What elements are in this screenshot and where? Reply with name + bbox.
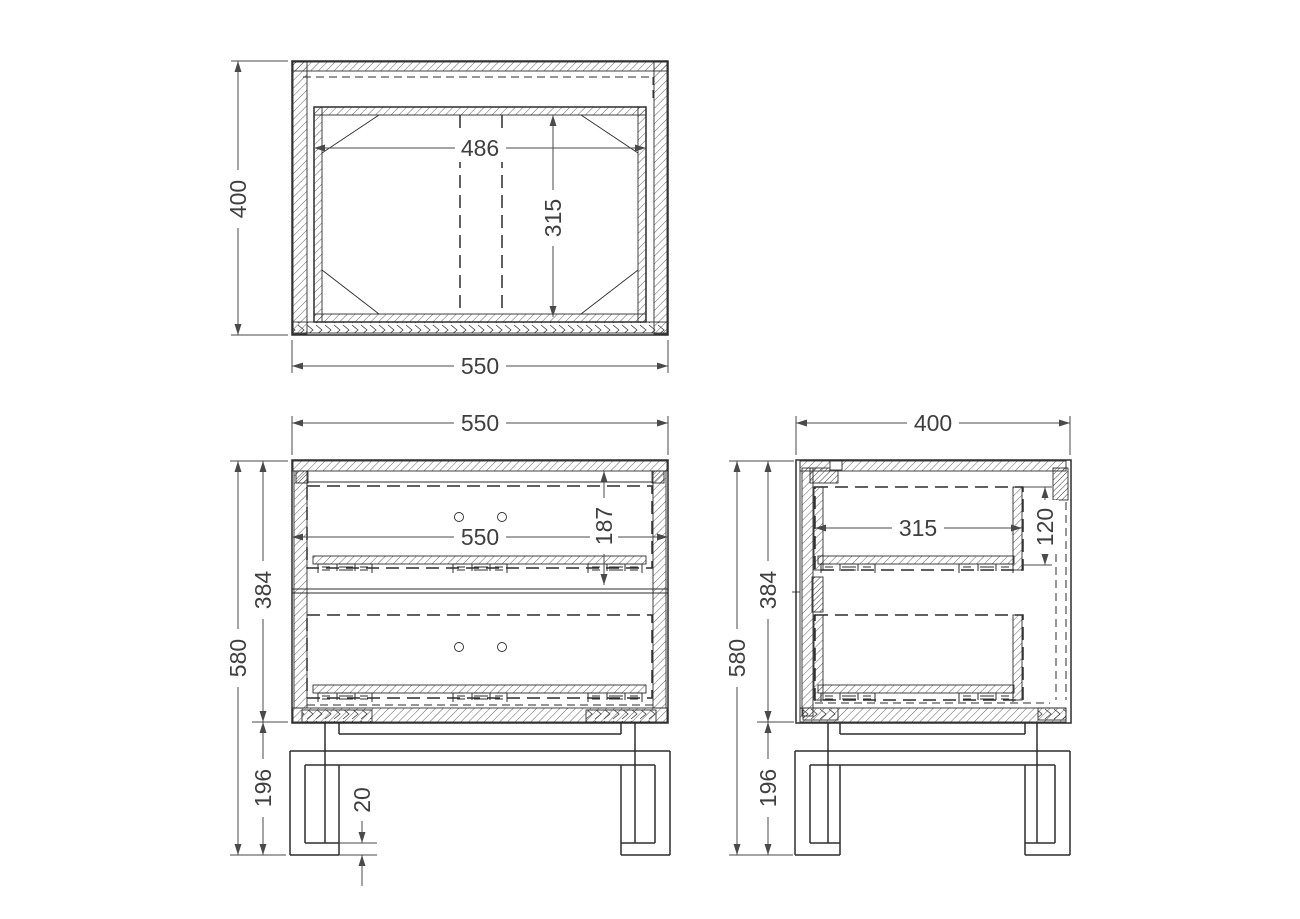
side-drawer-upper-bottom-hatch xyxy=(818,556,1014,564)
front-view-leg-frame xyxy=(290,723,670,855)
front-view-bottom-block-right xyxy=(586,710,656,722)
dim-label-side-drawer-depth: 315 xyxy=(899,515,937,541)
top-view-back-wall-hatch xyxy=(293,62,667,71)
dim-label-side-drawer-height: 120 xyxy=(1032,508,1058,546)
top-view: 486 315 400 550 xyxy=(224,61,668,380)
front-view-right-wall-hatch xyxy=(653,471,666,708)
dim-label-top-inner-depth: 315 xyxy=(540,199,566,237)
front-view-top-panel-hatch xyxy=(293,461,667,471)
technical-drawing-canvas: 486 315 400 550 xyxy=(0,0,1300,919)
dim-label-side-depth: 400 xyxy=(914,410,952,436)
dim-top-width: 550 xyxy=(292,340,668,380)
drawing-page: 486 315 400 550 xyxy=(0,0,1300,919)
dim-label-front-drawer-width: 550 xyxy=(461,524,499,550)
front-drawer-lower-bottom-hatch xyxy=(313,685,646,693)
dim-front-foot-clearance: 20 xyxy=(339,781,377,886)
front-view-corner-block-right xyxy=(652,471,664,483)
side-view-back-rail-hatch xyxy=(802,468,813,716)
front-view-corner-block-left xyxy=(296,471,308,483)
front-view-left-wall-hatch xyxy=(294,471,307,708)
dim-label-top-depth: 400 xyxy=(225,180,251,218)
dim-label-side-leg-height: 196 xyxy=(755,769,781,807)
dim-front-width: 550 xyxy=(292,409,668,455)
side-view-bottom-panel-hatch xyxy=(800,708,1066,722)
front-view-bottom-block-left xyxy=(302,710,372,722)
dim-label-side-total-height: 580 xyxy=(724,639,750,677)
side-view: 400 315 120 384 580 xyxy=(723,409,1071,855)
dim-label-front-drawer-front-height: 187 xyxy=(591,507,617,545)
front-drawer-lower-handle-hole xyxy=(455,643,464,652)
front-drawer-upper-handle-hole xyxy=(455,513,464,522)
side-view-carcass-outline xyxy=(796,460,1071,723)
dim-label-top-inner-width: 486 xyxy=(461,135,499,161)
dim-top-depth: 400 xyxy=(224,61,288,335)
front-drawer-upper-handle-hole xyxy=(498,513,507,522)
front-drawer-upper-bottom-hatch xyxy=(313,556,646,564)
top-view-drawer-box-right-hatch xyxy=(638,107,646,322)
dim-label-side-body-height: 384 xyxy=(755,571,781,610)
side-view-front-rail-hatch xyxy=(1053,468,1068,500)
front-drawer-lower-handle-hole xyxy=(498,643,507,652)
dim-label-front-body-height: 384 xyxy=(250,571,276,610)
side-drawer-lower-bottom-hatch xyxy=(818,685,1014,693)
side-view-bottom-block-front xyxy=(1038,708,1066,720)
top-view-right-wall-hatch xyxy=(654,62,667,334)
side-view-mid-rail-block xyxy=(812,577,823,612)
dim-label-top-width: 550 xyxy=(461,353,499,379)
top-view-drawer-box-top-hatch xyxy=(314,107,646,115)
front-view: 550 550 187 384 580 xyxy=(224,409,670,886)
side-view-bottom-block-back xyxy=(803,708,838,720)
dim-label-front-leg-height: 196 xyxy=(250,769,276,807)
dim-side-depth: 400 xyxy=(796,409,1070,455)
side-view-leg-frame xyxy=(795,723,1070,855)
dim-front-leg-height: 196 xyxy=(249,722,277,855)
dim-label-front-foot-clearance: 20 xyxy=(349,787,375,813)
top-view-left-wall-hatch xyxy=(293,62,307,334)
top-view-drawer-box-left-hatch xyxy=(314,107,322,322)
dim-label-front-total-height: 580 xyxy=(225,639,251,677)
dim-label-front-width: 550 xyxy=(461,410,499,436)
top-view-drawer-box-bottom-hatch xyxy=(314,314,646,322)
top-view-front-wall-herringbone xyxy=(293,322,667,333)
dim-side-leg-height: 196 xyxy=(754,722,782,855)
side-view-top-notch xyxy=(830,461,842,470)
